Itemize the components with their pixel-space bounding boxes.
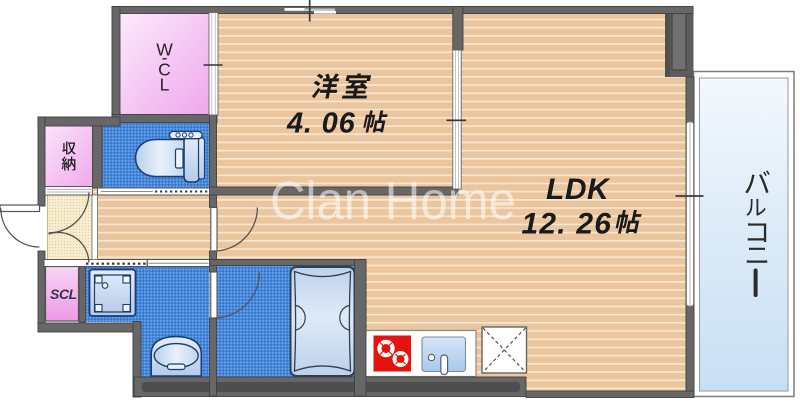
- svg-text:Clan Home: Clan Home: [270, 171, 516, 231]
- svg-text:LDK: LDK: [546, 173, 611, 206]
- svg-text:12. 26: 12. 26: [522, 208, 613, 241]
- svg-text:SCL: SCL: [50, 286, 77, 302]
- svg-text:L: L: [160, 75, 170, 95]
- svg-text:4. 06: 4. 06: [286, 108, 356, 140]
